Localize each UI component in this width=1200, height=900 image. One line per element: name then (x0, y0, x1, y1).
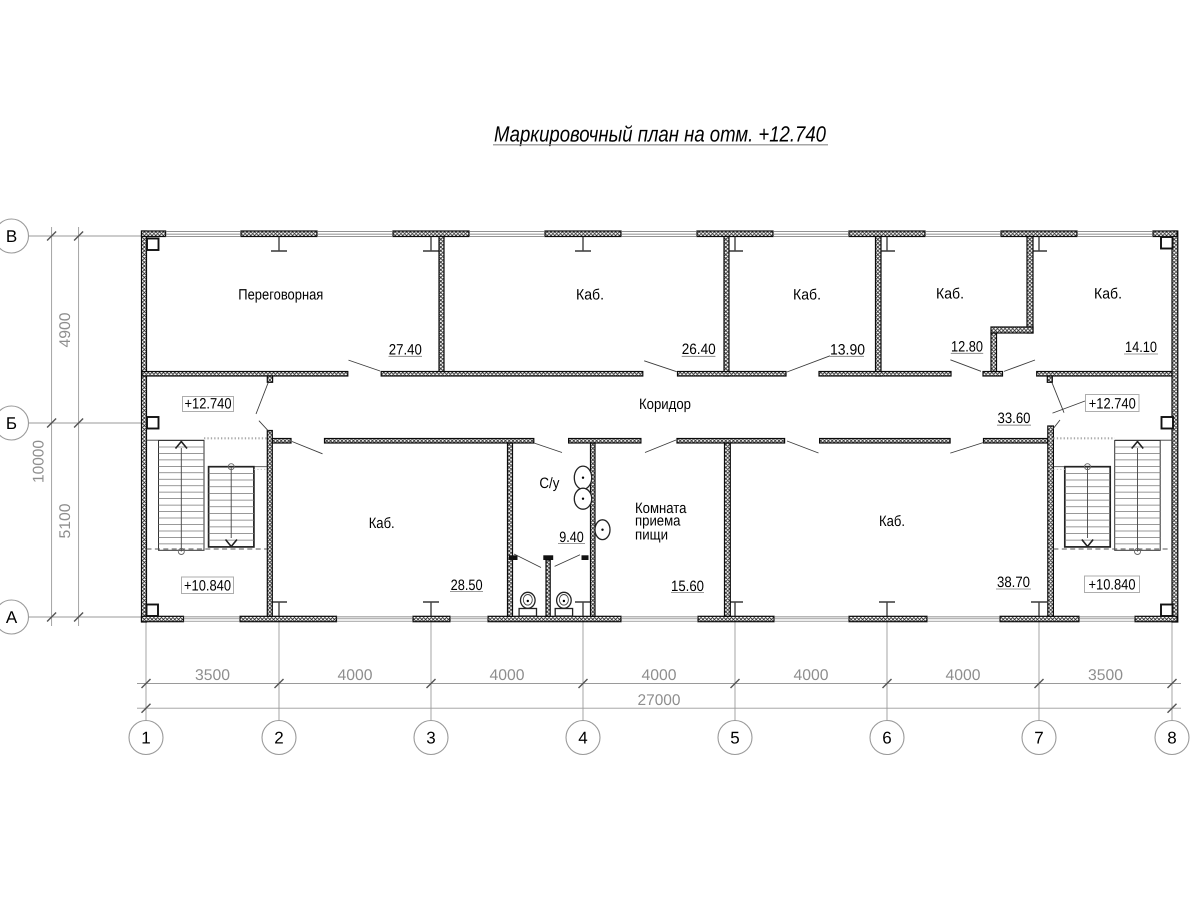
svg-text:8: 8 (1167, 729, 1176, 748)
svg-text:Каб.: Каб. (936, 286, 964, 303)
svg-text:3500: 3500 (1088, 667, 1123, 684)
svg-text:Б: Б (6, 414, 17, 433)
svg-text:Каб.: Каб. (879, 513, 905, 530)
svg-text:27000: 27000 (638, 692, 681, 709)
svg-text:Каб.: Каб. (1094, 286, 1122, 303)
svg-text:+12.740: +12.740 (1089, 395, 1136, 412)
svg-text:Маркировочный план на отм. +12: Маркировочный план на отм. +12.740 (494, 122, 827, 147)
svg-text:1: 1 (141, 729, 150, 748)
svg-text:5: 5 (730, 729, 739, 748)
svg-text:26.40: 26.40 (682, 341, 716, 358)
svg-text:+10.840: +10.840 (1089, 576, 1136, 593)
svg-text:С/у: С/у (539, 475, 559, 492)
svg-text:+10.840: +10.840 (184, 577, 231, 594)
svg-text:Переговорная: Переговорная (238, 287, 323, 304)
svg-text:4000: 4000 (642, 667, 677, 684)
svg-text:А: А (6, 608, 18, 627)
svg-text:2: 2 (274, 729, 283, 748)
svg-text:4: 4 (578, 729, 587, 748)
svg-text:Каб.: Каб. (793, 287, 821, 304)
svg-text:пищи: пищи (635, 527, 668, 544)
svg-text:В: В (6, 227, 17, 246)
svg-text:4000: 4000 (338, 667, 373, 684)
svg-text:4000: 4000 (490, 667, 525, 684)
svg-text:5100: 5100 (57, 503, 74, 538)
svg-text:33.60: 33.60 (998, 410, 1031, 427)
svg-text:4900: 4900 (57, 312, 74, 347)
svg-text:Коридор: Коридор (639, 396, 691, 413)
svg-text:4000: 4000 (946, 667, 981, 684)
svg-text:Каб.: Каб. (576, 287, 604, 304)
svg-text:3: 3 (426, 729, 435, 748)
svg-text:6: 6 (882, 729, 891, 748)
svg-text:3500: 3500 (195, 667, 230, 684)
svg-text:4000: 4000 (794, 667, 829, 684)
svg-text:7: 7 (1034, 729, 1043, 748)
svg-text:10000: 10000 (31, 440, 48, 483)
svg-text:Каб.: Каб. (369, 515, 395, 532)
svg-text:+12.740: +12.740 (185, 395, 232, 412)
